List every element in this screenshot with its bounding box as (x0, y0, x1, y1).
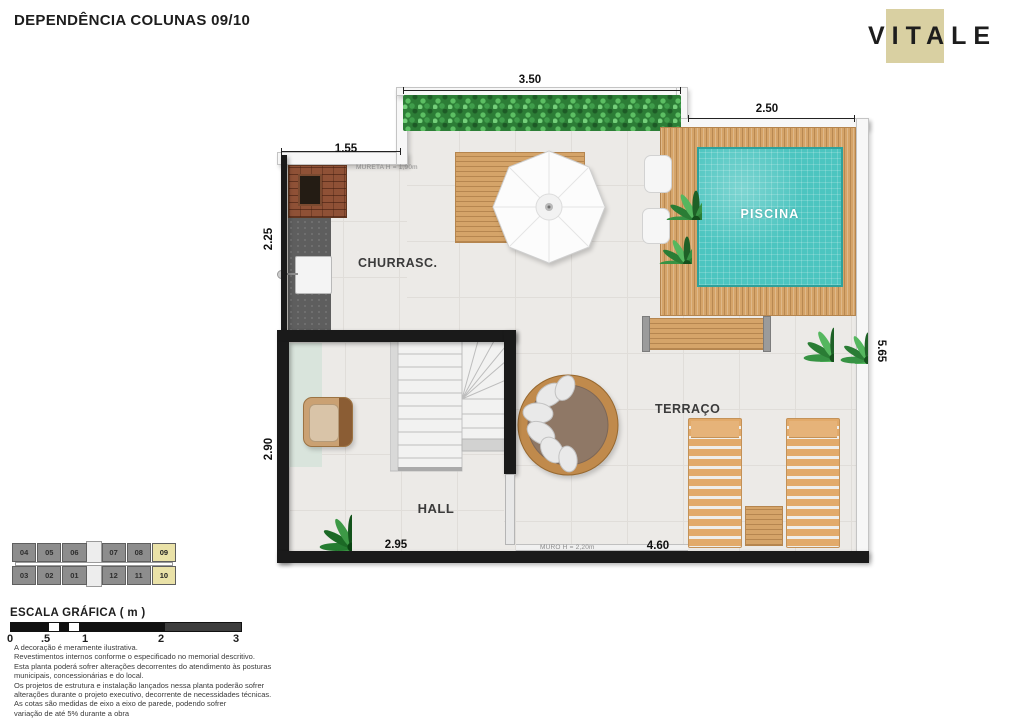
key-plan-unit-highlighted: 10 (152, 566, 176, 585)
lounge-chair-headrest (691, 421, 739, 438)
key-plan-unit: 07 (102, 543, 126, 562)
side-table (745, 506, 783, 546)
armchair-cushion (309, 404, 339, 442)
disclaimer-line: A decoração é meramente ilustrativa. (14, 643, 271, 652)
disclaimer-line: alterações durante o projeto executivo, … (14, 690, 271, 699)
scale-segment (165, 623, 241, 631)
key-plan-unit: 01 (62, 566, 86, 585)
scale-segment (49, 623, 59, 631)
page-title: DEPENDÊNCIA COLUNAS 09/10 (14, 12, 250, 29)
sink (295, 256, 332, 294)
key-plan-unit: 12 (102, 566, 126, 585)
note-muro: MURO H = 2,20m (540, 544, 595, 551)
key-plan-corridor (15, 562, 173, 566)
armchair (303, 397, 353, 447)
lounge-chair (786, 418, 840, 548)
dim-left-top: 1.55 (321, 143, 371, 155)
key-plan: 04 05 06 07 08 09 03 02 01 12 11 10 (10, 541, 178, 587)
key-plan-core-gap (88, 566, 101, 585)
room-label-terraco: TERRAÇO (655, 402, 720, 416)
grill-opening (298, 174, 322, 206)
key-plan-unit: 05 (37, 543, 61, 562)
disclaimer-line: Esta planta poderá sofrer alterações dec… (14, 662, 271, 671)
wall-left-upper (281, 155, 287, 332)
hall-doorway (505, 474, 515, 545)
dim-hedge-top: 3.50 (505, 74, 555, 86)
wall-hall-left (277, 342, 289, 563)
patio-umbrella (490, 148, 608, 266)
armchair-arm (339, 398, 352, 446)
scale-segment (11, 623, 49, 631)
staircase (390, 341, 514, 473)
scale-title: ESCALA GRÁFICA ( m ) (10, 607, 145, 619)
key-plan-core-gap (88, 543, 101, 562)
dim-left-lower: 2.90 (263, 429, 275, 469)
lounge-chair (688, 418, 742, 548)
disclaimer-text: A decoração é meramente ilustrativa. Rev… (14, 643, 271, 718)
key-plan-unit: 06 (62, 543, 86, 562)
key-plan-unit: 04 (12, 543, 36, 562)
room-label-piscina: PISCINA (697, 207, 843, 221)
disclaimer-line: variação de até 5% durante a obra (14, 709, 271, 718)
hedge-planter (403, 95, 681, 131)
room-label-churrasco: CHURRASC. (358, 256, 438, 270)
wall-hall-right (504, 330, 516, 474)
disclaimer-line: Revestimentos internos conforme o especi… (14, 652, 271, 661)
dim-pool-top: 2.50 (742, 103, 792, 115)
wall-hall-top (277, 330, 516, 342)
dim-right-side: 5.65 (875, 331, 887, 371)
key-plan-row-bottom: 03 02 01 12 11 10 (12, 566, 176, 585)
scale-segment (59, 623, 69, 631)
disclaimer-line: As cotas são medidas de eixo a eixo de p… (14, 699, 271, 708)
key-plan-unit: 03 (12, 566, 36, 585)
bench-end-cap (763, 316, 771, 352)
dimension-line-pool (688, 118, 855, 119)
dim-left-upper: 2.25 (263, 219, 275, 259)
disclaimer-line: municipais, concessionárias e do local. (14, 671, 271, 680)
key-plan-unit: 02 (37, 566, 61, 585)
scale-tick-0: 0 (7, 633, 13, 645)
plant (286, 474, 352, 554)
dim-terrace-bottom: 4.60 (633, 540, 683, 552)
barbecue-grill (288, 165, 347, 218)
key-plan-unit: 11 (127, 566, 151, 585)
dimension-line-hedge (403, 90, 681, 91)
wall-bottom (277, 551, 869, 563)
scale-segment (79, 623, 88, 631)
scale-segment (69, 623, 79, 631)
floor-plan-page: DEPENDÊNCIA COLUNAS 09/10 VITALE PISCINA (0, 0, 1024, 723)
key-plan-unit-highlighted: 09 (152, 543, 176, 562)
plant (812, 300, 868, 364)
scale-bar (10, 622, 242, 632)
plant (626, 208, 692, 264)
room-label-hall: HALL (410, 501, 462, 516)
key-plan-unit: 08 (127, 543, 151, 562)
dim-hall-bottom: 2.95 (371, 539, 421, 551)
bench (643, 318, 770, 350)
lounge-chair-headrest (789, 421, 837, 438)
key-plan-row-top: 04 05 06 07 08 09 (12, 543, 176, 562)
brand-logo-text: VITALE (868, 22, 1018, 51)
round-daybed (516, 373, 620, 477)
bench-end-cap (642, 316, 650, 352)
disclaimer-line: Os projetos de estrutura e instalação la… (14, 681, 271, 690)
note-mureta: MURETA H = 1,90m (356, 164, 418, 171)
scale-segment (88, 623, 165, 631)
